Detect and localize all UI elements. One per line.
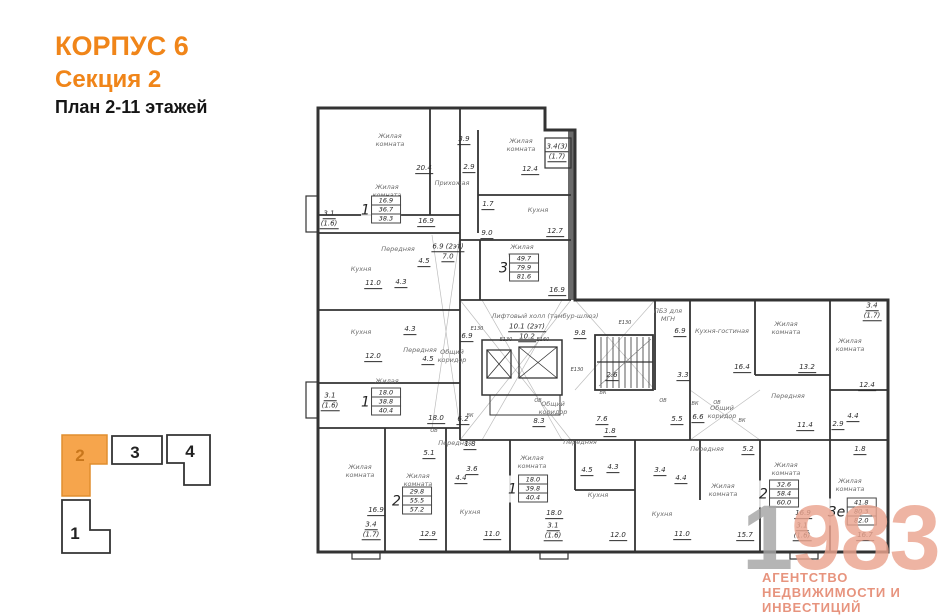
outer-wall [318, 108, 888, 552]
elevator-core [482, 340, 562, 415]
keyplan-label-3: 3 [130, 443, 139, 462]
corridor-diagonals [432, 235, 760, 440]
keyplan: 2 3 4 1 [40, 423, 220, 563]
keyplan-section-1[interactable] [62, 500, 110, 553]
keyplan-label-4: 4 [185, 442, 195, 461]
plan-header: КОРПУС 6 Секция 2 План 2-11 этажей [55, 30, 207, 119]
building-title: КОРПУС 6 [55, 30, 207, 64]
floors-subtitle: План 2-11 этажей [55, 95, 207, 119]
section-title: Секция 2 [55, 64, 207, 95]
keyplan-section-2[interactable] [62, 435, 107, 496]
keyplan-label-2: 2 [75, 446, 84, 465]
staircase [595, 335, 653, 390]
keyplan-label-1: 1 [70, 524, 79, 543]
inner-walls [318, 108, 888, 552]
